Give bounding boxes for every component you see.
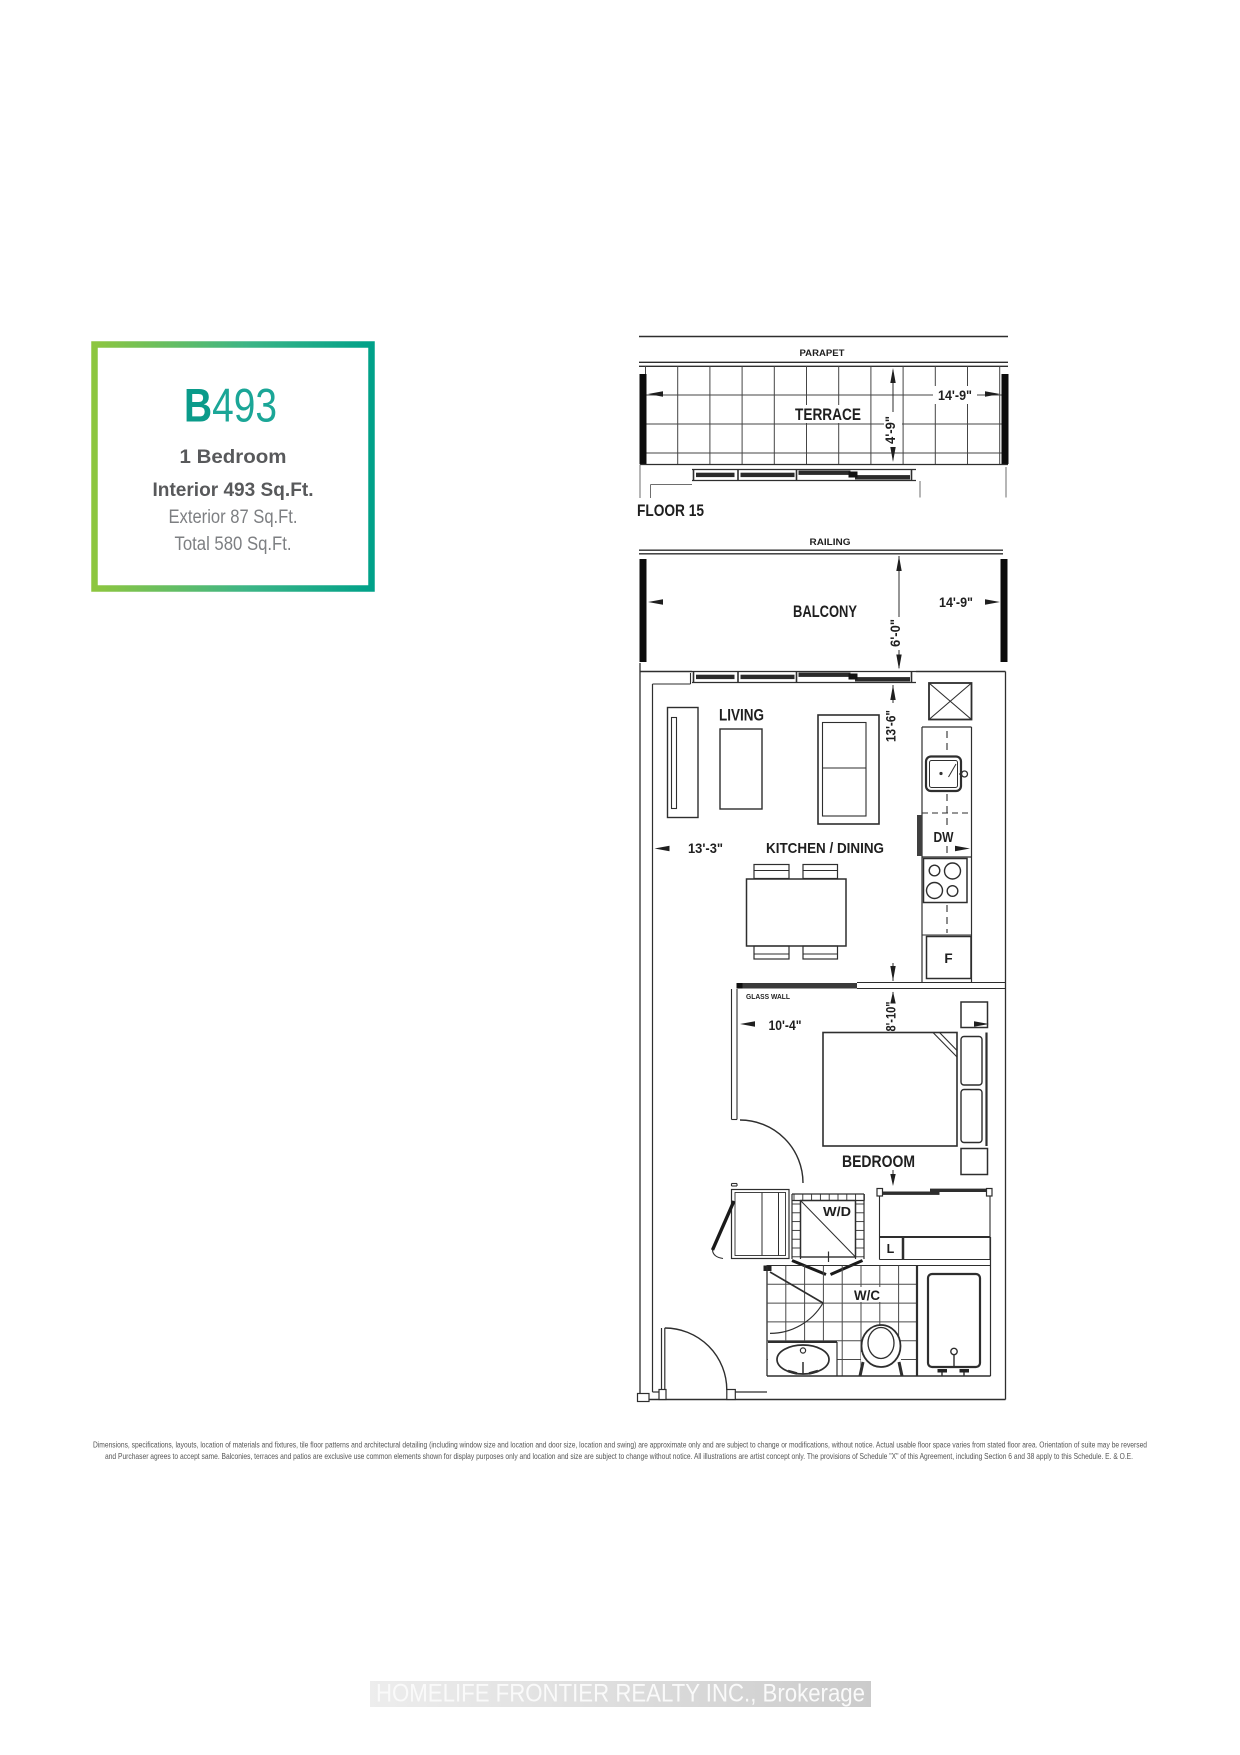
svg-text:L: L — [887, 1242, 895, 1256]
svg-text:and Purchaser agrees to accept: and Purchaser agrees to accept same. Bal… — [105, 1451, 1133, 1461]
svg-text:KITCHEN / DINING: KITCHEN / DINING — [766, 840, 884, 857]
svg-text:Exterior 87 Sq.Ft.: Exterior 87 Sq.Ft. — [169, 507, 298, 528]
svg-text:4'-9": 4'-9" — [883, 416, 898, 444]
svg-text:RAILING: RAILING — [810, 537, 851, 548]
svg-text:LIVING: LIVING — [719, 707, 764, 725]
svg-text:F: F — [944, 951, 952, 966]
svg-text:W/C: W/C — [854, 1288, 880, 1303]
svg-text:8'-10": 8'-10" — [884, 1002, 899, 1032]
svg-text:Dimensions, specifications, la: Dimensions, specifications, layouts, loc… — [93, 1440, 1147, 1450]
svg-text:13'-6": 13'-6" — [884, 710, 899, 742]
svg-text:14'-9": 14'-9" — [939, 595, 973, 610]
svg-text:BEDROOM: BEDROOM — [842, 1153, 915, 1171]
svg-text:HOMELIFE FRONTIER REALTY INC.,: HOMELIFE FRONTIER REALTY INC., Brokerage — [376, 1680, 865, 1708]
svg-text:TERRACE: TERRACE — [795, 406, 861, 424]
svg-text:Interior 493 Sq.Ft.: Interior 493 Sq.Ft. — [153, 479, 314, 501]
svg-text:FLOOR 15: FLOOR 15 — [637, 501, 704, 520]
svg-text:14'-9": 14'-9" — [938, 388, 972, 403]
svg-text:6'-0": 6'-0" — [888, 619, 903, 647]
svg-text:B493: B493 — [184, 379, 277, 432]
svg-text:13'-3": 13'-3" — [688, 841, 723, 856]
svg-text:BALCONY: BALCONY — [793, 603, 857, 621]
svg-text:PARAPET: PARAPET — [800, 348, 845, 359]
svg-text:1 Bedroom: 1 Bedroom — [180, 447, 287, 468]
svg-text:Total 580 Sq.Ft.: Total 580 Sq.Ft. — [175, 534, 292, 555]
svg-text:DW: DW — [934, 830, 954, 846]
svg-text:GLASS WALL: GLASS WALL — [746, 994, 791, 1001]
svg-text:10'-4": 10'-4" — [769, 1018, 802, 1033]
svg-text:W/D: W/D — [823, 1204, 851, 1219]
